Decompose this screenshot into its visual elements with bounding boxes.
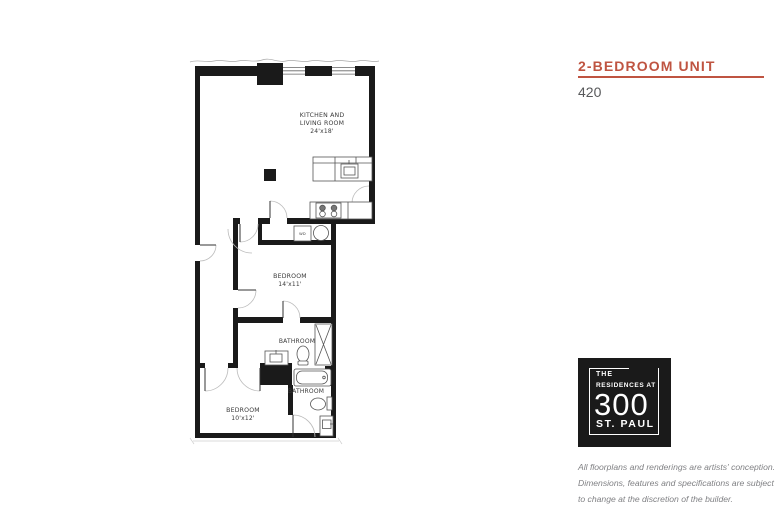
shower-icon bbox=[315, 324, 332, 365]
disclaimer: All floorplans and renderings are artist… bbox=[578, 459, 775, 507]
vanity-sink-icon bbox=[265, 350, 288, 365]
page-title: 2-BEDROOM UNIT bbox=[578, 58, 716, 74]
structural-column bbox=[264, 169, 276, 181]
room-label-kitchen-living-1: KITCHEN AND bbox=[300, 112, 345, 119]
floorplan-sheet: KITCHEN AND LIVING ROOM 24'x18' BEDROOM … bbox=[0, 0, 780, 517]
vanity-sink-icon bbox=[320, 416, 333, 436]
room-label-bathroom-lower: BATHROOM bbox=[288, 388, 324, 395]
title-underline bbox=[578, 76, 764, 78]
bathtub-icon bbox=[294, 369, 331, 386]
room-label-kitchen-living-dims: 24'x18' bbox=[310, 128, 334, 135]
room-label-bedroom-main: BEDROOM bbox=[273, 273, 307, 280]
bedroom-main-door-arc bbox=[238, 290, 256, 308]
room-label-bedroom-main-dims: 14'x11' bbox=[278, 281, 302, 288]
bathroom-lower-fixtures bbox=[294, 369, 333, 436]
room-label-kitchen-living-2: LIVING ROOM bbox=[300, 120, 344, 127]
disclaimer-line: to change at the discretion of the build… bbox=[578, 491, 775, 507]
residences-300-st-paul-logo: THE RESIDENCES AT 300 ST. PAUL bbox=[578, 358, 671, 447]
logo-the: THE bbox=[596, 371, 613, 378]
bedroom-second-door-arc-left bbox=[205, 368, 228, 391]
bedroom-second-door-arc-right bbox=[237, 368, 260, 391]
room-label-bathroom-upper: BATHROOM bbox=[279, 338, 315, 345]
room-label-bedroom-second-dims: 10'x12' bbox=[231, 415, 255, 422]
walls bbox=[195, 63, 375, 438]
disclaimer-line: Dimensions, features and specifications … bbox=[578, 475, 775, 491]
entry-door-arc bbox=[200, 245, 216, 261]
toilet-icon bbox=[311, 397, 333, 410]
logo-300: 300 bbox=[594, 389, 649, 420]
bathroom-upper-door-arc bbox=[283, 301, 300, 318]
info-panel: 2-BEDROOM UNIT 420 THE RESIDENCES AT 300… bbox=[578, 0, 778, 517]
bedroom-main-closet-arc bbox=[240, 224, 258, 242]
kitchen-door-arc bbox=[270, 201, 287, 218]
toilet-icon bbox=[297, 346, 309, 365]
room-label-washer-dryer: WD bbox=[299, 232, 306, 236]
kitchen-right-door-arc bbox=[352, 186, 369, 203]
logo-st-paul: ST. PAUL bbox=[596, 418, 655, 430]
disclaimer-line: All floorplans and renderings are artist… bbox=[578, 459, 775, 475]
unit-number: 420 bbox=[578, 84, 601, 100]
room-label-bedroom-second: BEDROOM bbox=[226, 407, 260, 414]
stove-icon bbox=[310, 202, 372, 219]
